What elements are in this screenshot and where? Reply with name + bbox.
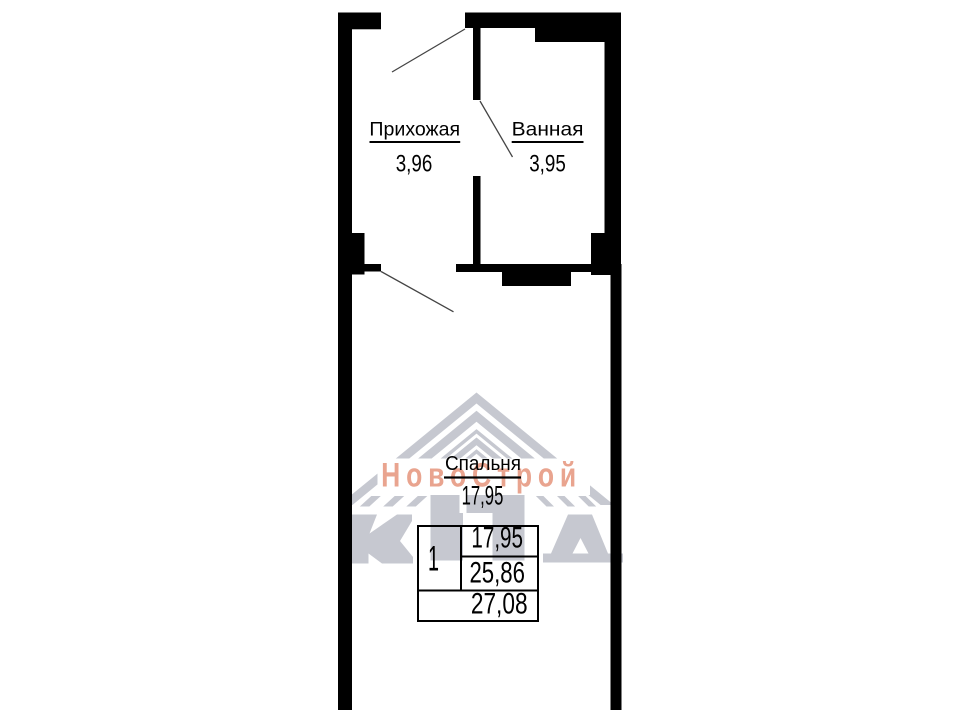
svg-text:Прихожая: Прихожая bbox=[369, 119, 460, 141]
svg-text:27,08: 27,08 bbox=[471, 588, 528, 621]
svg-text:17,95: 17,95 bbox=[462, 481, 504, 511]
svg-text:3,95: 3,95 bbox=[529, 151, 566, 178]
svg-text:1: 1 bbox=[428, 540, 439, 579]
svg-text:Спальня: Спальня bbox=[445, 452, 521, 475]
svg-text:25,86: 25,86 bbox=[469, 557, 525, 590]
svg-text:3,96: 3,96 bbox=[396, 151, 433, 178]
svg-text:17,95: 17,95 bbox=[471, 522, 523, 555]
svg-text:Ванная: Ванная bbox=[512, 119, 584, 141]
